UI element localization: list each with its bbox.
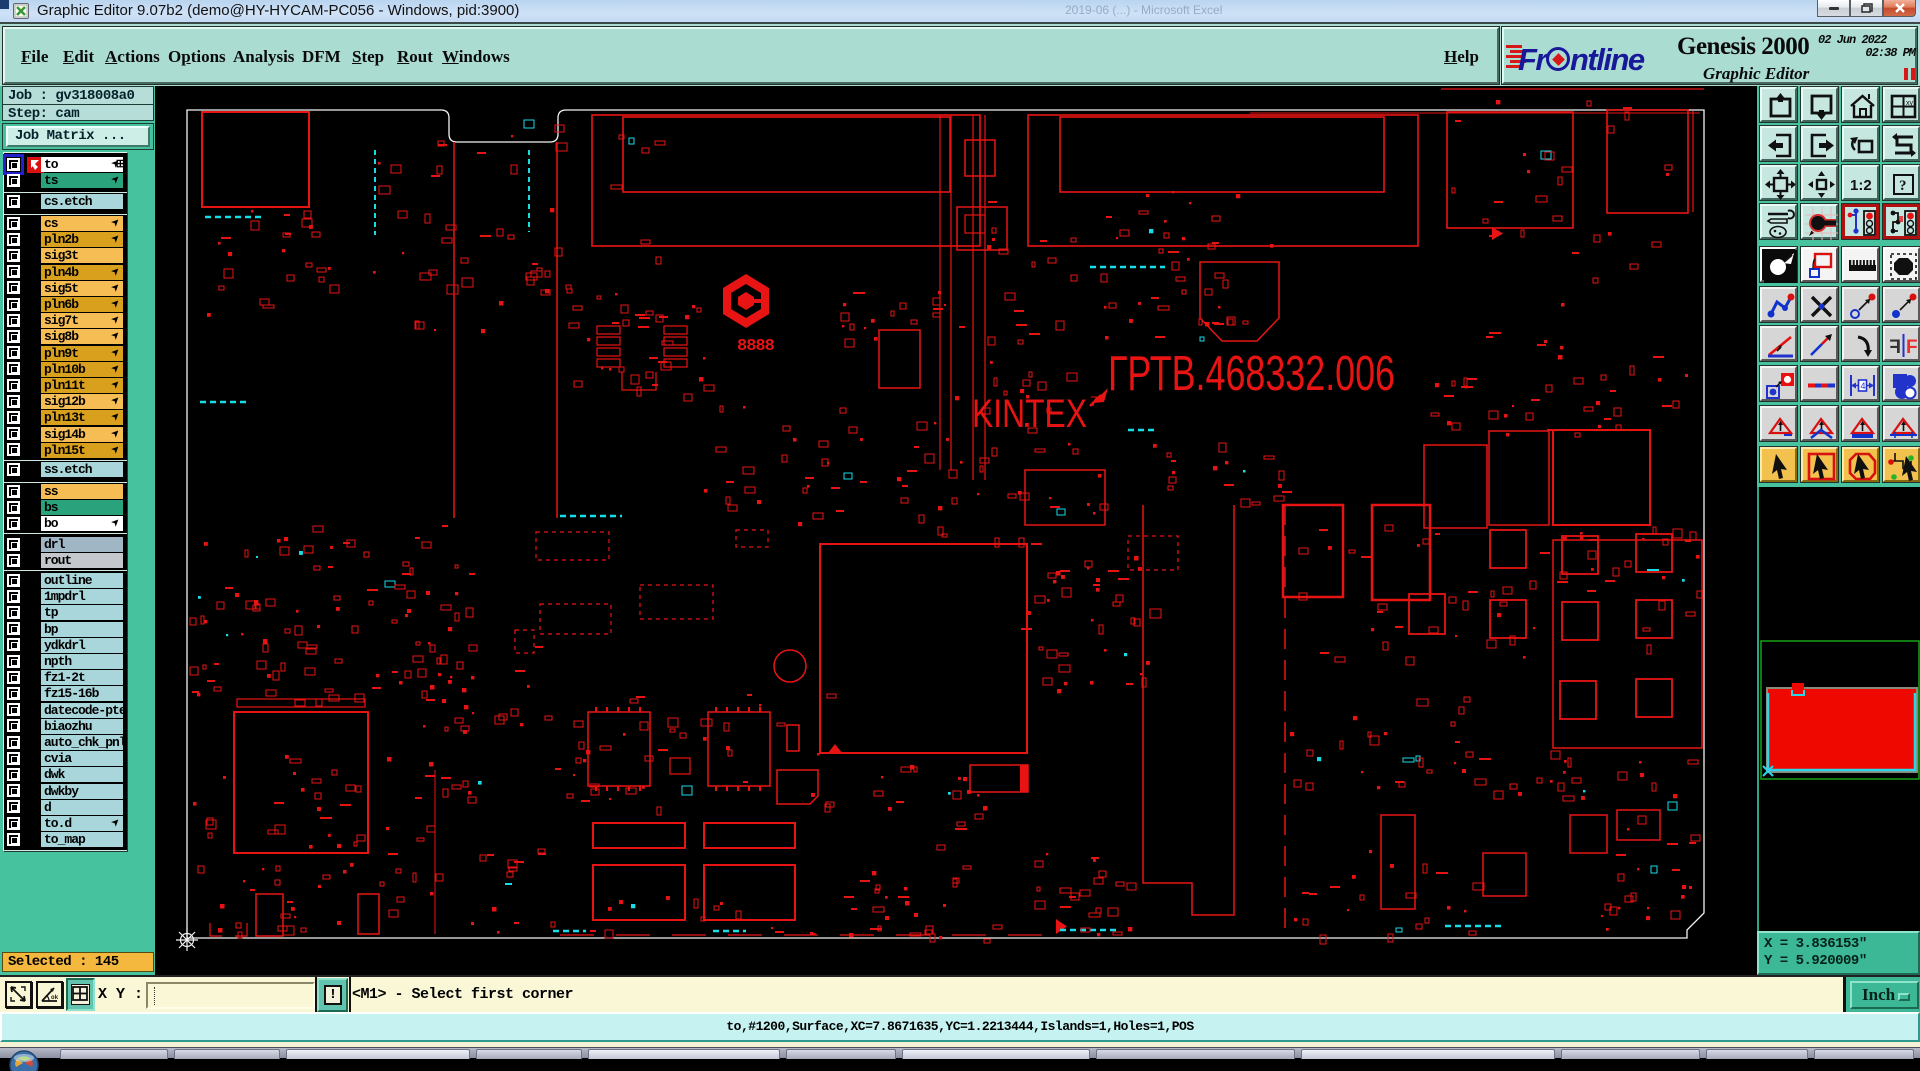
svg-text:xy: xy [1906, 100, 1914, 107]
svg-text:8888: 8888 [737, 337, 775, 356]
svg-text:ok: ok [51, 994, 59, 1001]
svg-text:F: F [1889, 337, 1901, 358]
svg-text:?: ? [1899, 178, 1907, 194]
svg-text:ГРТВ.468332.006: ГРТВ.468332.006 [1108, 347, 1395, 401]
svg-text:1:2: 1:2 [1850, 177, 1872, 194]
svg-text:4: 4 [1861, 381, 1866, 391]
svg-text:F: F [1906, 337, 1918, 358]
